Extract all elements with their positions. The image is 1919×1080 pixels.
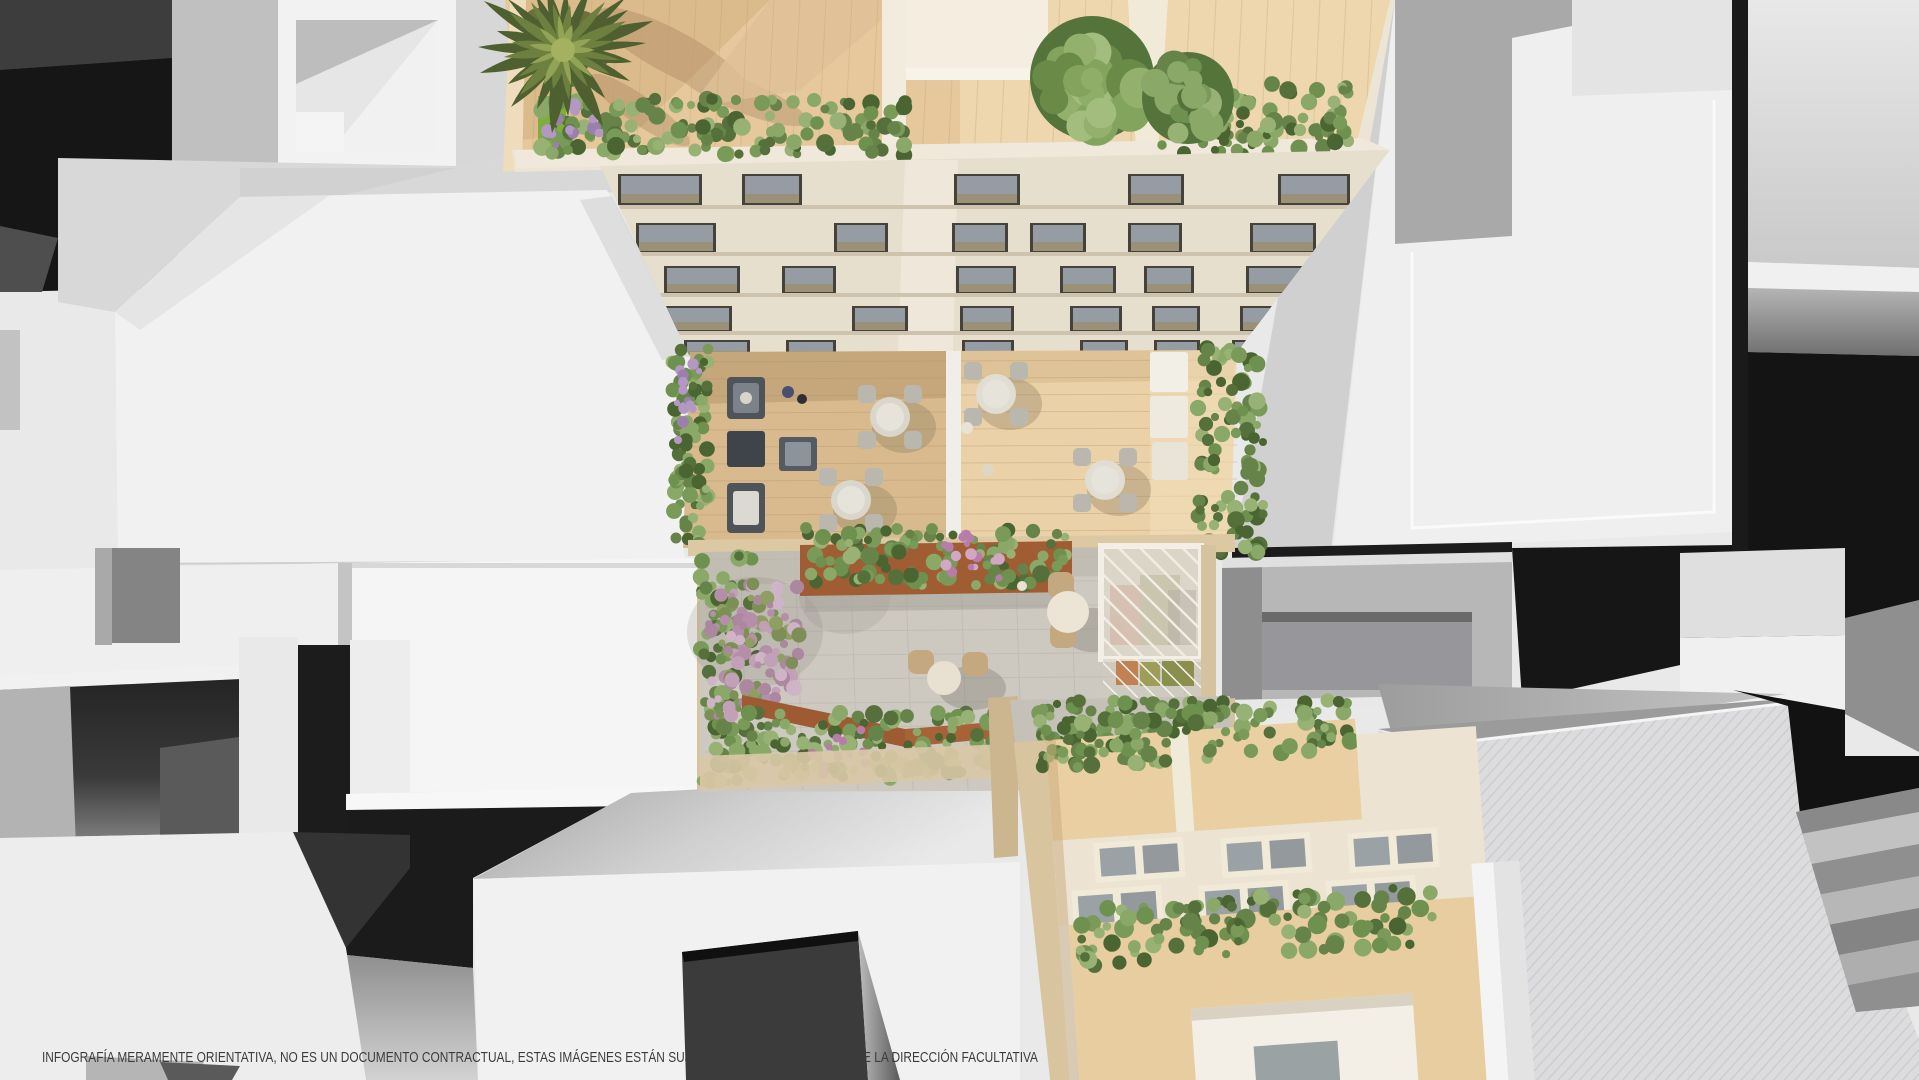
svg-text:INFOGRAFÍA MERAMENTE ORIENTATI: INFOGRAFÍA MERAMENTE ORIENTATIVA, NO ES … bbox=[42, 1049, 1038, 1066]
